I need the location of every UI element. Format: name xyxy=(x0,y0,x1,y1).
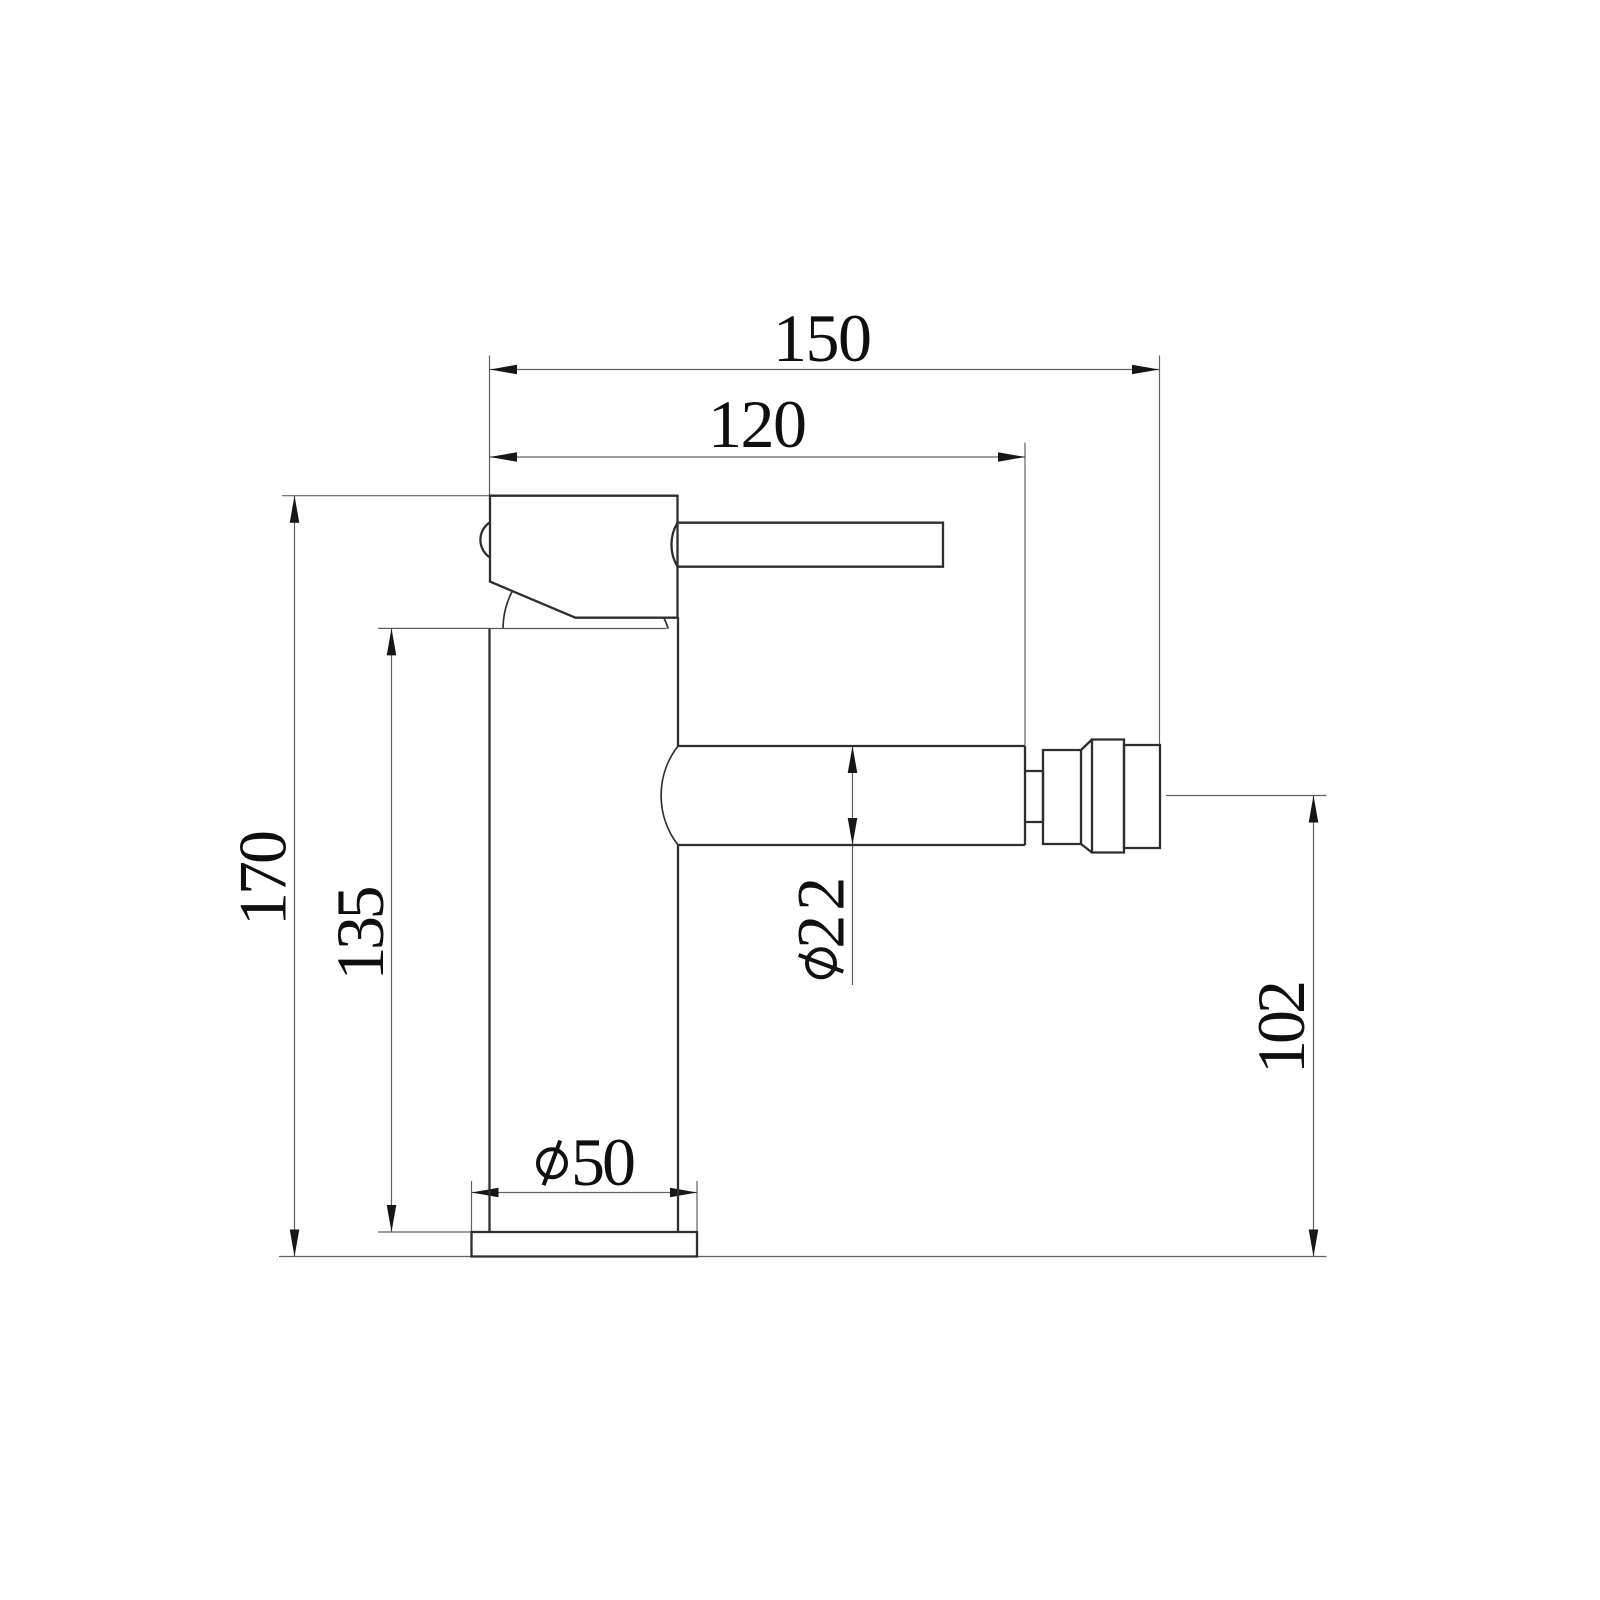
svg-text:170: 170 xyxy=(225,830,301,926)
svg-text:102: 102 xyxy=(1243,980,1319,1074)
svg-text:120: 120 xyxy=(708,386,807,462)
svg-text:50: 50 xyxy=(571,1124,636,1200)
svg-text:135: 135 xyxy=(322,886,398,981)
svg-text:150: 150 xyxy=(773,300,872,376)
svg-text:22: 22 xyxy=(783,877,859,949)
